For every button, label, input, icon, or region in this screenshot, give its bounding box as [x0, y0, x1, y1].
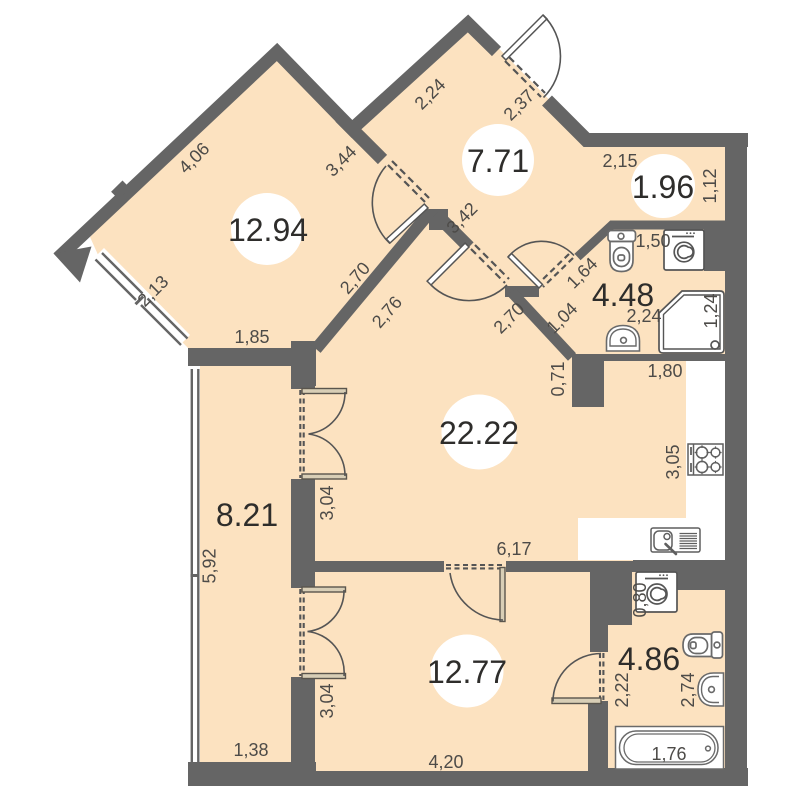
svg-text:5,92: 5,92 [200, 548, 220, 583]
svg-text:1,85: 1,85 [234, 327, 269, 347]
svg-text:2,24: 2,24 [626, 306, 661, 326]
svg-text:3,04: 3,04 [317, 485, 337, 520]
svg-text:2,15: 2,15 [602, 151, 637, 171]
svg-text:0,71: 0,71 [548, 361, 568, 396]
svg-text:1,76: 1,76 [651, 744, 686, 764]
svg-text:1,50: 1,50 [635, 231, 670, 251]
svg-text:4.86: 4.86 [618, 641, 680, 677]
svg-text:2,74: 2,74 [678, 672, 698, 707]
svg-text:2,22: 2,22 [612, 672, 632, 707]
svg-text:4,20: 4,20 [428, 752, 463, 772]
svg-text:1,38: 1,38 [233, 740, 268, 760]
svg-text:3,05: 3,05 [663, 444, 683, 479]
svg-text:1,80: 1,80 [647, 361, 682, 381]
svg-text:1.96: 1.96 [632, 169, 694, 205]
svg-text:3,04: 3,04 [317, 683, 337, 718]
svg-text:1,24: 1,24 [701, 293, 721, 328]
svg-text:8.21: 8.21 [216, 497, 278, 533]
svg-text:0,80: 0,80 [630, 582, 650, 617]
svg-text:6,17: 6,17 [496, 539, 531, 559]
svg-text:22.22: 22.22 [439, 415, 519, 451]
svg-text:7.71: 7.71 [467, 143, 529, 179]
svg-text:12.94: 12.94 [228, 212, 308, 248]
svg-text:1,12: 1,12 [700, 168, 720, 203]
svg-text:12.77: 12.77 [427, 654, 507, 690]
